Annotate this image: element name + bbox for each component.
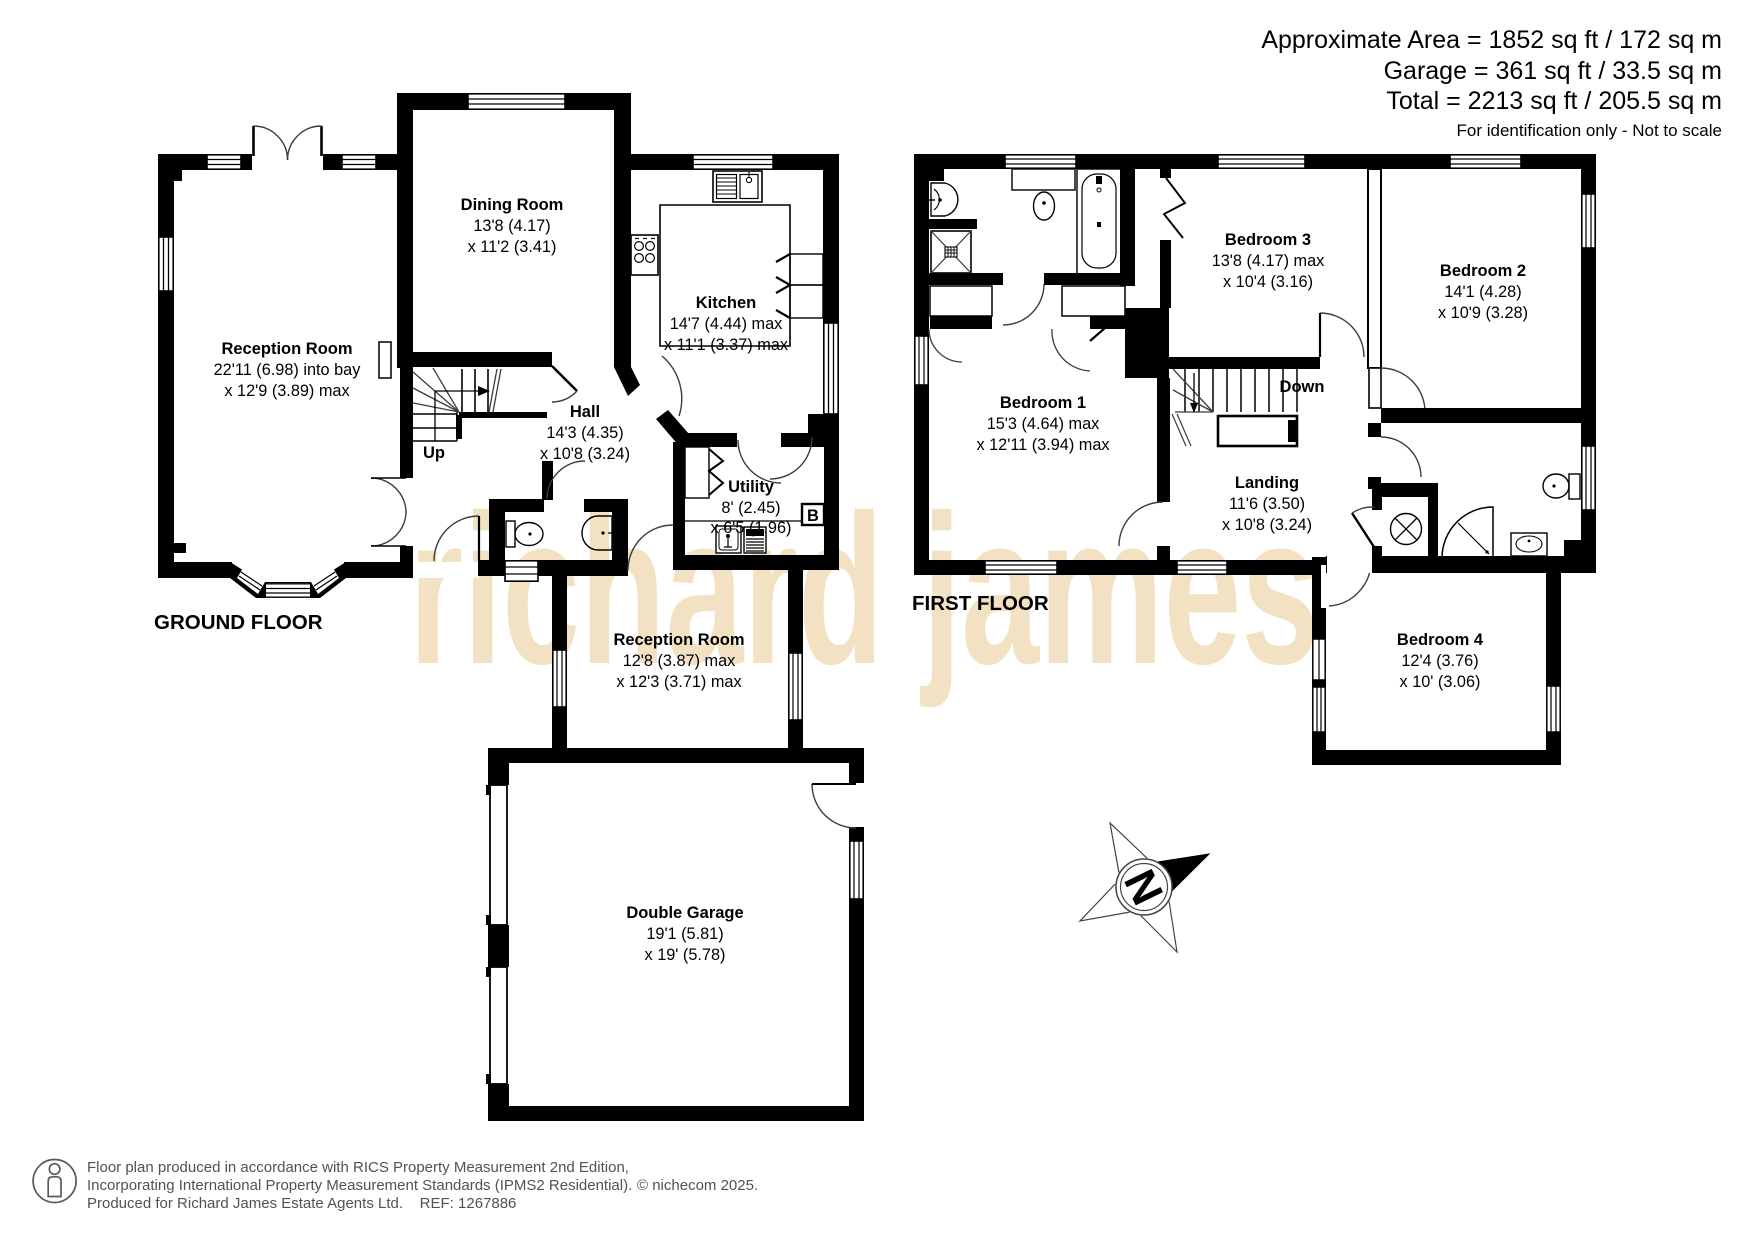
svg-text:x 10' (3.06): x 10' (3.06) xyxy=(1400,673,1481,691)
svg-text:Floor plan produced in accorda: Floor plan produced in accordance with R… xyxy=(87,1159,629,1176)
svg-text:Reception Room: Reception Room xyxy=(613,631,744,649)
svg-text:Bedroom 3: Bedroom 3 xyxy=(1225,231,1311,249)
svg-text:x 12'3 (3.71) max: x 12'3 (3.71) max xyxy=(616,673,741,691)
svg-text:x 12'11 (3.94) max: x 12'11 (3.94) max xyxy=(976,436,1109,454)
svg-text:x 12'9 (3.89) max: x 12'9 (3.89) max xyxy=(224,382,349,400)
svg-text:richard james: richard james xyxy=(409,472,1319,709)
svg-text:15'3 (4.64) max: 15'3 (4.64) max xyxy=(987,415,1100,433)
svg-text:Total = 2213 sq ft / 205.5 sq: Total = 2213 sq ft / 205.5 sq m xyxy=(1386,87,1722,115)
svg-text:FIRST FLOOR: FIRST FLOOR xyxy=(912,592,1049,615)
svg-text:14'1 (4.28): 14'1 (4.28) xyxy=(1444,283,1521,301)
svg-text:12'4 (3.76): 12'4 (3.76) xyxy=(1401,652,1478,670)
svg-text:14'7 (4.44) max: 14'7 (4.44) max xyxy=(670,315,783,333)
svg-text:x 19' (5.78): x 19' (5.78) xyxy=(645,946,726,964)
svg-text:Utility: Utility xyxy=(728,478,775,496)
svg-text:GROUND FLOOR: GROUND FLOOR xyxy=(154,611,323,634)
svg-text:Landing: Landing xyxy=(1235,474,1299,492)
svg-text:Incorporating International Pr: Incorporating International Property Mea… xyxy=(87,1177,632,1194)
svg-text:Down: Down xyxy=(1280,378,1325,396)
svg-text:Bedroom 2: Bedroom 2 xyxy=(1440,262,1526,280)
svg-text:x 11'1 (3.37) max: x 11'1 (3.37) max xyxy=(664,336,788,354)
svg-text:x 10'8 (3.24): x 10'8 (3.24) xyxy=(1222,516,1312,534)
svg-text:11'6 (3.50): 11'6 (3.50) xyxy=(1229,495,1305,513)
svg-text:Up: Up xyxy=(423,444,445,462)
svg-text:x 6'5 (1.96): x 6'5 (1.96) xyxy=(711,519,792,537)
svg-text:Bedroom 1: Bedroom 1 xyxy=(1000,394,1086,412)
svg-text:22'11 (6.98) into bay: 22'11 (6.98) into bay xyxy=(214,361,362,379)
svg-text:Produced for Richard James Est: Produced for Richard James Estate Agents… xyxy=(87,1195,516,1212)
svg-text:12'8 (3.87) max: 12'8 (3.87) max xyxy=(623,652,736,670)
svg-text:Hall: Hall xyxy=(570,403,600,421)
svg-text:© nichecom 2025.: © nichecom 2025. xyxy=(637,1177,758,1194)
svg-text:Approximate Area = 1852 sq ft: Approximate Area = 1852 sq ft / 172 sq m xyxy=(1261,26,1722,54)
svg-text:x 10'9 (3.28): x 10'9 (3.28) xyxy=(1438,304,1528,322)
svg-text:Reception Room: Reception Room xyxy=(221,340,352,358)
svg-text:8' (2.45): 8' (2.45) xyxy=(721,499,780,517)
svg-text:19'1 (5.81): 19'1 (5.81) xyxy=(646,925,723,943)
svg-text:Dining Room: Dining Room xyxy=(461,196,564,214)
svg-text:For identification only - Not: For identification only - Not to scale xyxy=(1456,121,1722,140)
svg-text:Garage = 361 sq ft / 33.5 sq m: Garage = 361 sq ft / 33.5 sq m xyxy=(1384,57,1722,85)
svg-text:14'3 (4.35): 14'3 (4.35) xyxy=(546,424,623,442)
svg-text:Double Garage: Double Garage xyxy=(626,904,743,922)
svg-text:Bedroom 4: Bedroom 4 xyxy=(1397,631,1484,649)
svg-text:Kitchen: Kitchen xyxy=(696,294,757,312)
svg-text:x 11'2 (3.41): x 11'2 (3.41) xyxy=(468,238,557,256)
svg-text:B: B xyxy=(807,507,819,525)
svg-text:13'8 (4.17) max: 13'8 (4.17) max xyxy=(1212,252,1325,270)
svg-text:13'8 (4.17): 13'8 (4.17) xyxy=(473,217,550,235)
svg-text:x 10'4 (3.16): x 10'4 (3.16) xyxy=(1223,273,1313,291)
